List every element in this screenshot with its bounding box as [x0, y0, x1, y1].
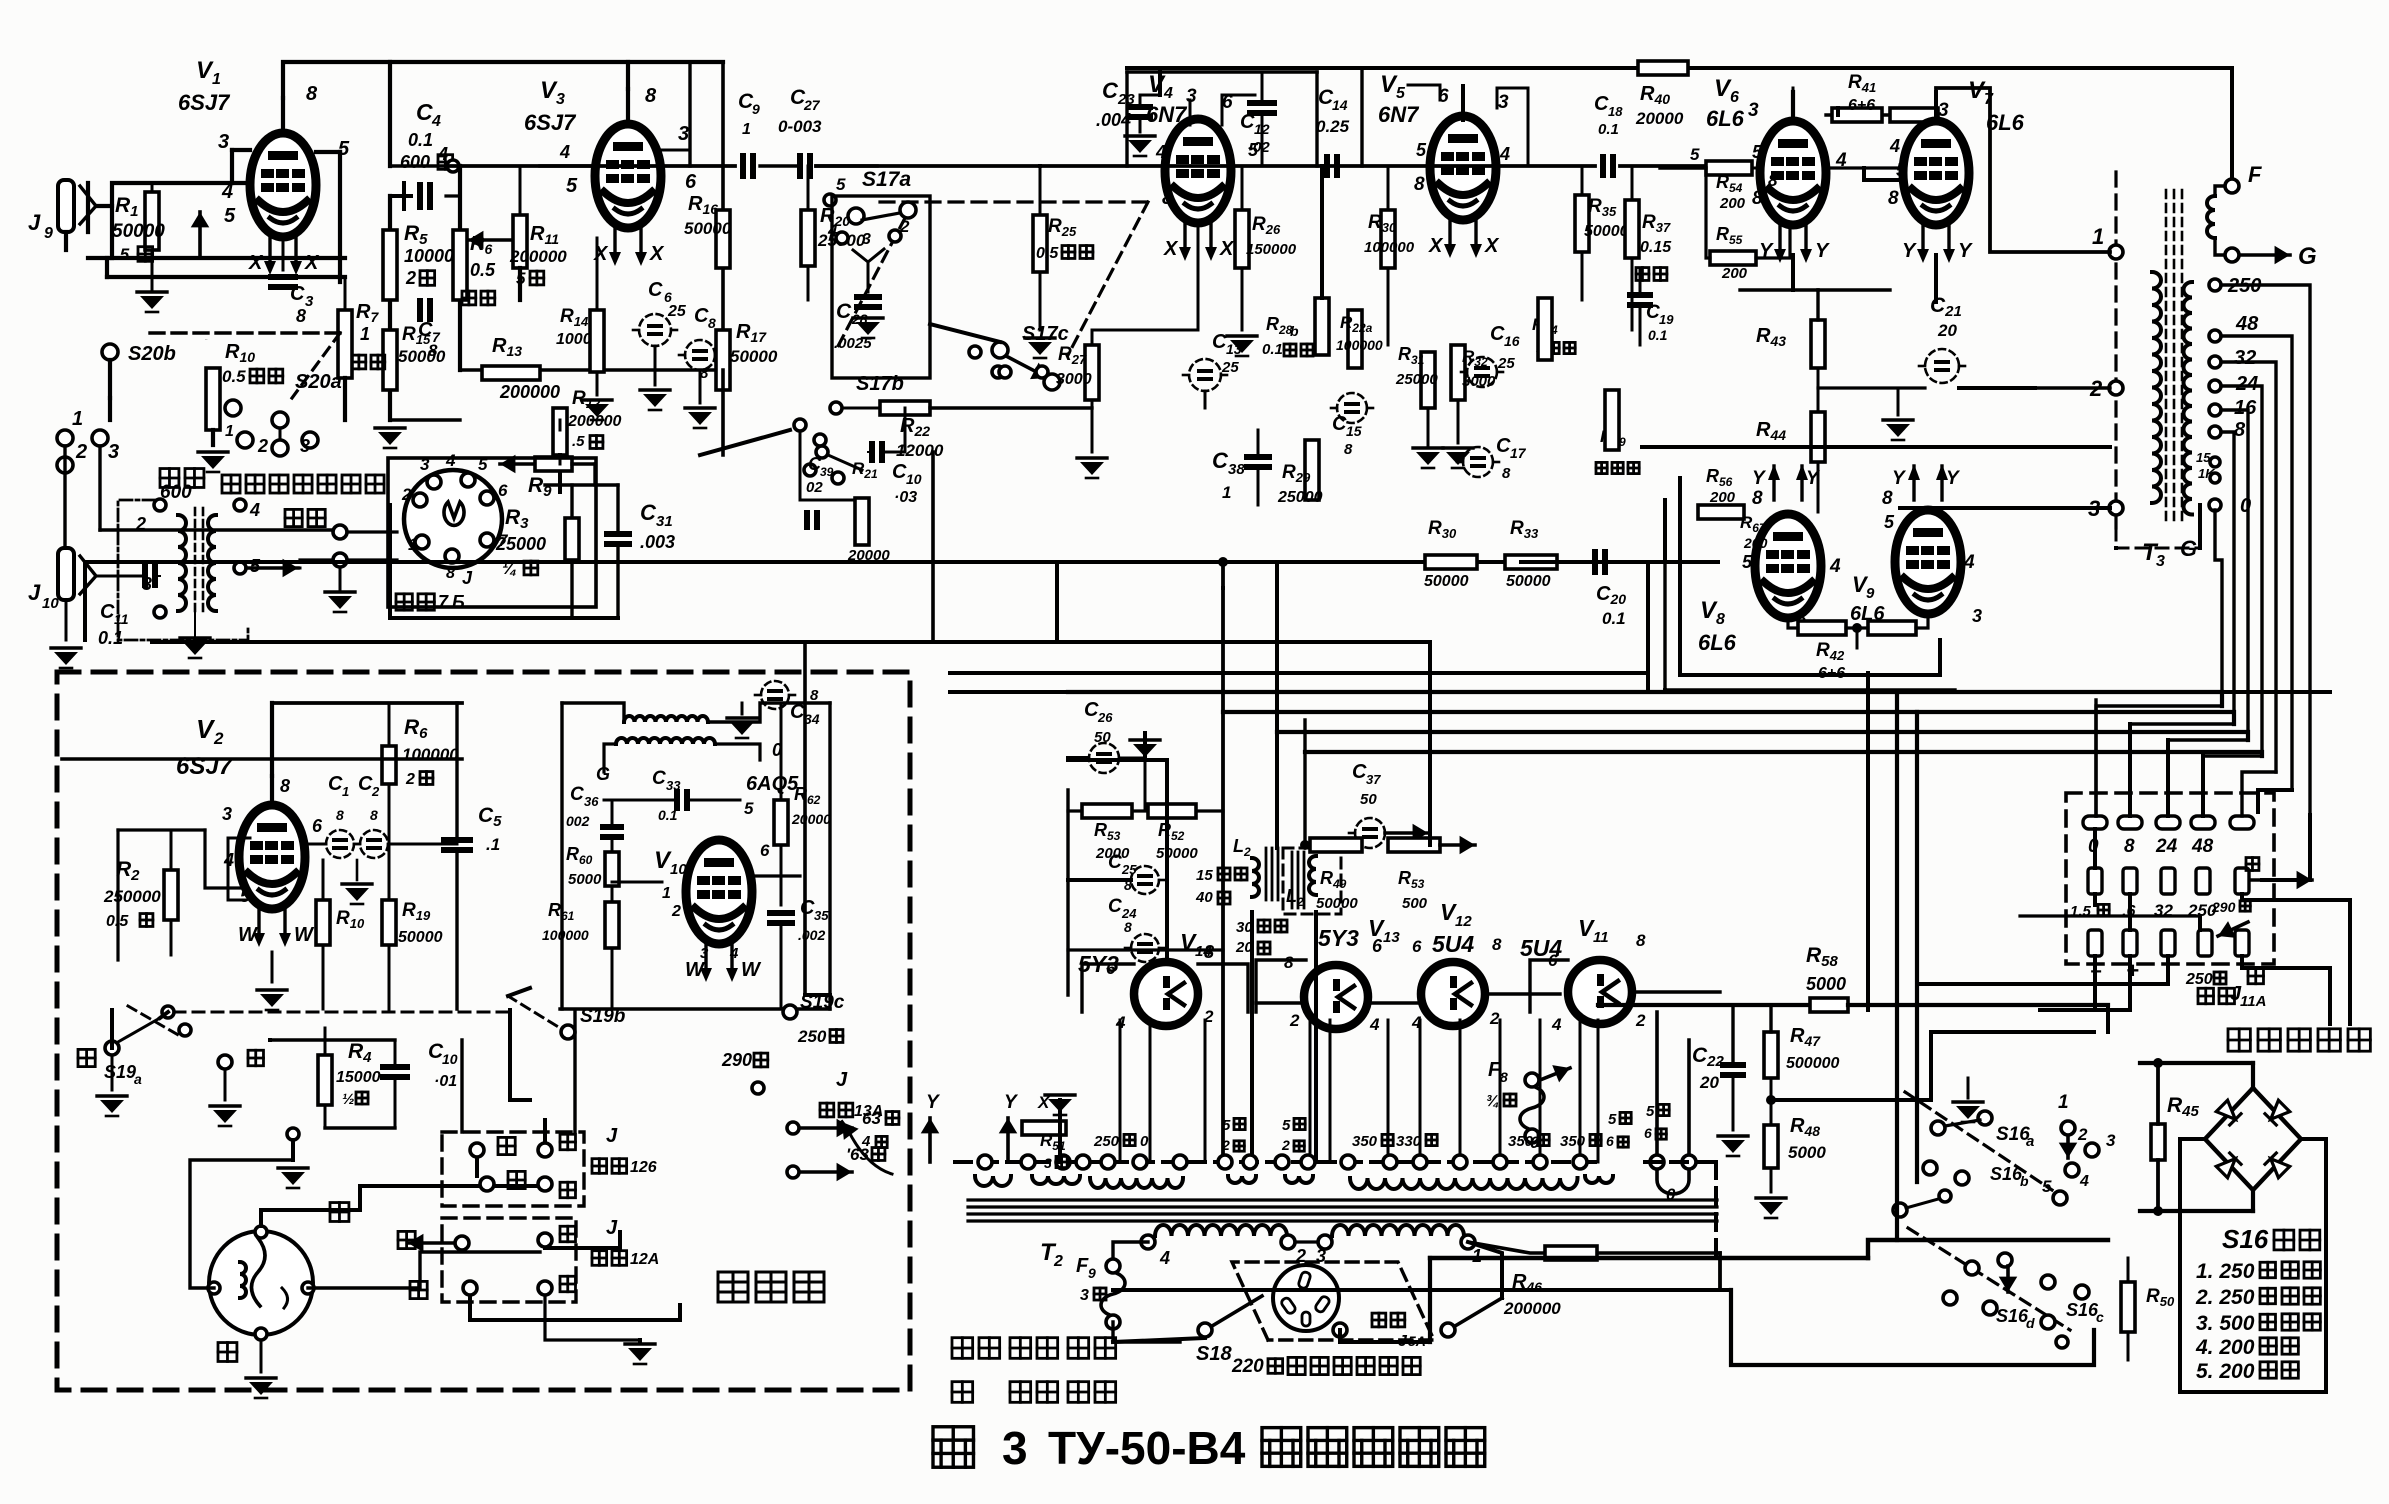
svg-text:25000: 25000: [495, 534, 546, 554]
svg-text:1: 1: [342, 784, 349, 799]
svg-text:0.5: 0.5: [470, 260, 496, 280]
svg-text:3. 500: 3. 500: [2196, 1312, 2255, 1335]
svg-text:50000: 50000: [398, 929, 443, 946]
svg-text:48: 48: [2191, 836, 2214, 857]
svg-text:8: 8: [2234, 419, 2246, 441]
svg-text:11: 11: [1593, 929, 1609, 946]
svg-text:6AQ5: 6AQ5: [746, 773, 799, 795]
svg-text:9: 9: [1866, 585, 1875, 602]
svg-text:8: 8: [1284, 953, 1294, 972]
svg-text:15000: 15000: [336, 1069, 381, 1086]
svg-text:38: 38: [1228, 461, 1245, 478]
svg-text:C: C: [1240, 111, 1255, 133]
svg-text:S20b: S20b: [128, 343, 176, 365]
svg-text:220: 220: [1231, 1356, 1264, 1377]
svg-text:15: 15: [1196, 867, 1213, 884]
svg-text:330: 330: [1396, 1133, 1422, 1150]
svg-text:2: 2: [371, 784, 380, 799]
svg-text:150000: 150000: [1246, 241, 1297, 258]
svg-text:6L6: 6L6: [1706, 106, 1745, 131]
svg-text:C: C: [1332, 413, 1347, 435]
svg-text:200: 200: [1719, 195, 1746, 212]
svg-text:8: 8: [810, 687, 819, 704]
svg-text:Y: Y: [1958, 240, 1973, 262]
svg-text:5000: 5000: [568, 871, 602, 888]
svg-text:4: 4: [1159, 1248, 1170, 1268]
svg-text:5: 5: [1222, 1117, 1231, 1134]
svg-text:18: 18: [1608, 104, 1623, 119]
svg-text:2: 2: [671, 903, 681, 920]
svg-text:16: 16: [1504, 333, 1520, 349]
svg-text:5: 5: [240, 886, 251, 906]
svg-text:1: 1: [742, 121, 751, 138]
svg-text:4: 4: [437, 144, 448, 164]
svg-text:2. 250: 2. 250: [2195, 1286, 2255, 1309]
svg-text:1: 1: [72, 408, 83, 430]
svg-text:6: 6: [1606, 1133, 1614, 1149]
svg-text:50000: 50000: [730, 347, 778, 366]
svg-text:1: 1: [408, 535, 417, 554]
svg-text:C: C: [1212, 331, 1227, 353]
svg-text:5: 5: [1608, 1111, 1617, 1128]
svg-text:5: 5: [1742, 552, 1753, 572]
svg-text:8: 8: [1500, 1069, 1508, 1085]
svg-text:J: J: [606, 1125, 618, 1147]
svg-text:0.1: 0.1: [1648, 327, 1668, 343]
svg-text:J: J: [462, 568, 473, 588]
svg-text:5: 5: [224, 205, 236, 227]
svg-text:5: 5: [1396, 85, 1406, 102]
svg-text:.5: .5: [115, 245, 130, 264]
svg-text:.5: .5: [572, 433, 585, 450]
svg-text:10: 10: [42, 595, 59, 612]
svg-text:C: C: [1212, 448, 1229, 473]
svg-text:5: 5: [566, 175, 578, 197]
svg-text:S20a: S20a: [295, 371, 342, 393]
svg-text:5000: 5000: [1806, 974, 1846, 994]
svg-text:500000: 500000: [1786, 1055, 1839, 1072]
svg-text:S19b: S19b: [580, 1006, 626, 1027]
svg-text:5: 5: [1690, 145, 1700, 164]
svg-text:17: 17: [1510, 445, 1527, 461]
svg-text:C: C: [358, 773, 373, 795]
svg-text:W: W: [294, 924, 315, 946]
svg-text:33: 33: [666, 778, 681, 793]
svg-text:600: 600: [400, 152, 430, 172]
svg-text:500: 500: [1402, 895, 1428, 912]
svg-text:40: 40: [1195, 889, 1213, 906]
svg-text:3: 3: [300, 436, 310, 456]
svg-text:3: 3: [556, 91, 565, 108]
svg-text:350: 350: [1560, 1133, 1586, 1150]
svg-text:8: 8: [1882, 488, 1893, 509]
svg-text:J: J: [28, 580, 41, 605]
svg-text:5: 5: [836, 175, 846, 194]
svg-text:C: C: [836, 300, 852, 323]
svg-text:7: 7: [438, 592, 449, 612]
svg-text:J: J: [28, 210, 41, 235]
svg-text:25: 25: [1221, 359, 1239, 376]
svg-text:5: 5: [744, 799, 754, 818]
svg-text:8: 8: [1492, 935, 1502, 954]
svg-text:G: G: [2298, 243, 2317, 270]
svg-text:100000: 100000: [542, 927, 589, 943]
svg-text:2: 2: [405, 268, 416, 288]
svg-text:350: 350: [1508, 1133, 1534, 1150]
svg-text:5: 5: [2042, 1177, 2052, 1196]
svg-text:4: 4: [559, 142, 570, 162]
svg-text:1: 1: [225, 423, 234, 440]
svg-text:C: C: [100, 601, 115, 623]
svg-text:C: C: [1352, 761, 1367, 783]
svg-text:6+6: 6+6: [1848, 97, 1875, 114]
svg-text:10: 10: [906, 471, 922, 487]
svg-text:8: 8: [1768, 171, 1778, 190]
svg-text:C: C: [1490, 323, 1505, 345]
svg-text:·01: ·01: [434, 1073, 457, 1090]
svg-text:C: C: [1594, 93, 1609, 115]
svg-text:8: 8: [1716, 611, 1725, 628]
svg-text:290: 290: [721, 1050, 752, 1070]
svg-text:50: 50: [1360, 791, 1377, 808]
svg-text:3: 3: [1080, 1287, 1089, 1304]
svg-text:290: 290: [2211, 899, 2236, 915]
svg-text:5. 200: 5. 200: [2196, 1360, 2255, 1383]
svg-text:8: 8: [1124, 919, 1132, 935]
svg-text:20000: 20000: [791, 811, 831, 827]
svg-text:.003: .003: [640, 532, 675, 552]
svg-text:C: C: [290, 283, 305, 305]
svg-text:2: 2: [257, 436, 268, 456]
svg-text:32: 32: [2234, 347, 2256, 369]
svg-text:0-003: 0-003: [778, 117, 822, 136]
svg-text:6: 6: [1412, 937, 1422, 956]
svg-text:250: 250: [797, 1027, 827, 1046]
svg-text:5: 5: [1752, 142, 1763, 162]
svg-text:C: C: [648, 279, 663, 301]
svg-text:4: 4: [1155, 142, 1166, 162]
svg-text:·03: ·03: [894, 489, 917, 506]
svg-text:b: b: [1290, 323, 1299, 339]
svg-text:50000: 50000: [1316, 895, 1358, 912]
svg-text:50000: 50000: [684, 219, 732, 238]
svg-text:c: c: [2096, 1309, 2104, 1325]
svg-text:9: 9: [1088, 1265, 1096, 1281]
svg-text:Б: Б: [452, 592, 465, 612]
svg-text:3: 3: [2156, 553, 2165, 570]
svg-text:2: 2: [1635, 1011, 1646, 1030]
svg-text:50000: 50000: [398, 347, 446, 366]
svg-text:Y: Y: [1902, 240, 1917, 262]
svg-text:0.1: 0.1: [658, 807, 678, 823]
svg-text:002: 002: [566, 813, 590, 829]
svg-text:S16: S16: [1990, 1164, 2023, 1184]
svg-text:¾: ¾: [1486, 1093, 1499, 1110]
svg-text:50000: 50000: [1424, 573, 1469, 590]
svg-text:1. 250: 1. 250: [2196, 1260, 2255, 1283]
svg-text:S19: S19: [104, 1062, 136, 1082]
svg-text:X: X: [1163, 238, 1179, 260]
svg-text:Y: Y: [1815, 240, 1830, 262]
svg-text:W: W: [741, 959, 762, 981]
svg-text:2: 2: [2077, 1125, 2088, 1144]
svg-text:48: 48: [2235, 313, 2259, 335]
svg-text:0: 0: [1140, 1133, 1149, 1150]
svg-text:19: 19: [1659, 312, 1674, 327]
svg-text:12: 12: [1455, 913, 1472, 930]
svg-text:2: 2: [1281, 1137, 1290, 1153]
svg-text:3: 3: [1044, 1155, 1052, 1171]
svg-text:250: 250: [2185, 971, 2213, 988]
svg-text:8: 8: [336, 807, 344, 823]
svg-text:6: 6: [1106, 959, 1116, 978]
svg-text:1: 1: [360, 324, 370, 344]
svg-text:J: J: [606, 1217, 618, 1239]
svg-text:20: 20: [1699, 1073, 1719, 1092]
svg-text:8: 8: [1636, 931, 1646, 950]
svg-text:126: 126: [630, 1159, 657, 1176]
svg-text:25: 25: [667, 303, 687, 320]
svg-text:1: 1: [2092, 224, 2104, 249]
svg-text:2: 2: [75, 441, 87, 463]
svg-text:4. 200: 4. 200: [2195, 1336, 2255, 1359]
svg-text:50000: 50000: [112, 221, 165, 242]
svg-text:3: 3: [678, 123, 689, 145]
svg-text:6: 6: [685, 171, 697, 193]
svg-text:63: 63: [862, 1109, 881, 1128]
svg-text:5: 5: [1884, 512, 1895, 532]
svg-text:X: X: [304, 252, 320, 274]
svg-text:0: 0: [1666, 1185, 1676, 1204]
svg-text:S17c: S17c: [1022, 323, 1069, 345]
svg-text:2: 2: [1489, 1009, 1500, 1028]
svg-text:12A: 12A: [630, 1251, 659, 1268]
svg-text:8: 8: [306, 83, 318, 105]
svg-text:C: C: [1496, 435, 1511, 457]
svg-text:6: 6: [498, 481, 508, 500]
svg-text:16: 16: [2234, 397, 2257, 419]
svg-text:27: 27: [803, 97, 821, 113]
svg-text:0.1: 0.1: [408, 130, 433, 150]
svg-text:8: 8: [1162, 188, 1173, 209]
svg-text:S18: S18: [1196, 1343, 1232, 1365]
svg-text:200: 200: [1709, 489, 1736, 506]
svg-text:20: 20: [1937, 321, 1957, 340]
svg-text:26: 26: [1097, 710, 1113, 725]
svg-text:02: 02: [806, 479, 823, 496]
svg-text:36: 36: [584, 794, 599, 809]
svg-text:4: 4: [445, 451, 456, 470]
svg-text:8: 8: [446, 565, 455, 582]
svg-text:2: 2: [135, 514, 146, 534]
svg-text:W: W: [685, 959, 706, 981]
svg-text:9: 9: [752, 101, 760, 117]
svg-text:J: J: [836, 1069, 848, 1091]
svg-text:39: 39: [820, 465, 834, 479]
svg-text:0.1: 0.1: [1602, 609, 1626, 628]
svg-text:4: 4: [1163, 85, 1173, 102]
svg-text:½: ½: [342, 1091, 355, 1108]
svg-text:35: 35: [814, 908, 829, 923]
svg-text:a: a: [2026, 1133, 2034, 1150]
svg-text:5000: 5000: [1788, 1143, 1826, 1162]
svg-text:4: 4: [861, 1133, 871, 1150]
svg-text:24: 24: [2155, 836, 2178, 857]
svg-text:a: a: [134, 1071, 142, 1087]
svg-text:24: 24: [2235, 373, 2258, 395]
svg-text:X: X: [593, 243, 609, 265]
svg-text:3: 3: [1972, 606, 1982, 626]
svg-text:+: +: [2126, 958, 2139, 983]
svg-text:C: C: [1084, 699, 1099, 721]
svg-text:3: 3: [1748, 100, 1759, 121]
svg-text:4: 4: [2079, 1173, 2089, 1190]
svg-text:11: 11: [114, 611, 129, 627]
svg-text:4: 4: [1369, 1015, 1380, 1034]
svg-text:8: 8: [1752, 488, 1763, 509]
svg-text:1: 1: [662, 885, 671, 902]
svg-text:S16: S16: [1996, 1306, 2029, 1326]
svg-text:S17a: S17a: [862, 168, 911, 191]
svg-text:200: 200: [1721, 265, 1748, 282]
svg-text:V: V: [196, 714, 216, 744]
svg-text:200000: 200000: [499, 382, 560, 402]
svg-text:C: C: [790, 701, 805, 723]
svg-text:10: 10: [670, 861, 687, 878]
svg-text:4: 4: [1499, 144, 1510, 164]
svg-text:6L6: 6L6: [1698, 630, 1737, 655]
svg-text:10: 10: [442, 1051, 458, 1067]
svg-text:2: 2: [405, 771, 415, 788]
svg-text:6: 6: [1372, 936, 1383, 956]
svg-text:250: 250: [1093, 1133, 1120, 1150]
svg-text:3: 3: [218, 131, 229, 153]
svg-text:X: X: [1484, 235, 1500, 257]
svg-text:6SJ7: 6SJ7: [176, 753, 234, 780]
svg-text:2: 2: [401, 485, 412, 504]
svg-text:11A: 11A: [2240, 993, 2266, 1010]
svg-text:C: C: [1108, 852, 1122, 873]
svg-text:25000: 25000: [1395, 371, 1438, 388]
svg-text:5: 5: [1646, 1103, 1655, 1120]
svg-text:250000: 250000: [103, 887, 161, 906]
svg-text:0.15: 0.15: [1640, 239, 1672, 256]
svg-text:4: 4: [1963, 552, 1975, 573]
svg-text:37: 37: [1366, 772, 1381, 787]
svg-text:6N7: 6N7: [1378, 102, 1420, 127]
svg-text:.1: .1: [486, 835, 500, 854]
svg-text:4: 4: [431, 113, 441, 130]
svg-text:0.1: 0.1: [1262, 341, 1283, 358]
svg-text:8: 8: [1888, 188, 1899, 209]
svg-text:8: 8: [370, 807, 378, 823]
svg-text:0.1: 0.1: [1598, 121, 1619, 138]
svg-text:2: 2: [899, 217, 910, 236]
svg-text:C: C: [1646, 302, 1660, 323]
svg-text:25000: 25000: [1277, 489, 1323, 506]
svg-text:8: 8: [2124, 836, 2135, 857]
svg-text:1000: 1000: [556, 331, 592, 348]
svg-text:5: 5: [250, 556, 261, 576]
svg-text:0.5: 0.5: [1036, 245, 1059, 262]
svg-text:S16: S16: [2222, 1224, 2269, 1254]
svg-text:8: 8: [645, 85, 657, 107]
svg-text:C: C: [1102, 78, 1119, 103]
svg-text:1: 1: [1222, 483, 1231, 502]
svg-text:3: 3: [1938, 100, 1949, 121]
svg-text:200000: 200000: [567, 413, 621, 430]
svg-text:3: 3: [108, 441, 119, 463]
svg-text:d: d: [2026, 1315, 2035, 1331]
svg-text:200: 200: [1743, 535, 1768, 551]
svg-text:2: 2: [1289, 1011, 1300, 1030]
svg-text:6SJ7: 6SJ7: [524, 110, 577, 135]
svg-text:8: 8: [296, 306, 306, 326]
svg-text:20000: 20000: [1635, 109, 1684, 128]
svg-text:50: 50: [1094, 729, 1111, 746]
svg-text:S20a: S20a: [205, 339, 208, 341]
svg-text:8: 8: [1752, 188, 1763, 209]
svg-text:5Y3: 5Y3: [1318, 925, 1359, 951]
svg-text:X: X: [1428, 235, 1444, 257]
svg-text:C: C: [416, 99, 433, 125]
svg-text:3: 3: [862, 231, 871, 248]
svg-text:13: 13: [1383, 929, 1400, 946]
svg-text:6: 6: [1730, 89, 1739, 106]
svg-text:200000: 200000: [509, 247, 567, 266]
svg-text:6SJ7: 6SJ7: [178, 90, 231, 115]
svg-text:b: b: [2020, 1173, 2029, 1189]
svg-text:100000: 100000: [402, 745, 459, 764]
svg-text:G: G: [596, 764, 610, 784]
svg-text:14: 14: [1332, 97, 1348, 113]
svg-text:50000: 50000: [1156, 845, 1198, 862]
svg-text:3: 3: [305, 293, 314, 310]
svg-text:-02: -02: [1248, 139, 1270, 156]
svg-text:25: 25: [1497, 355, 1515, 372]
svg-text:ТУ-50-В4: ТУ-50-В4: [1048, 1422, 1246, 1474]
svg-text:5: 5: [1896, 160, 1907, 180]
svg-text:4: 4: [1829, 556, 1841, 577]
svg-text:3: 3: [700, 945, 709, 962]
svg-text:31: 31: [656, 513, 673, 530]
svg-text:5: 5: [1416, 140, 1427, 160]
svg-text:C: C: [328, 773, 343, 795]
svg-text:4: 4: [249, 500, 260, 520]
svg-text:4: 4: [1889, 136, 1900, 156]
svg-text:C: C: [892, 461, 907, 483]
svg-text:200000: 200000: [1503, 1299, 1561, 1318]
svg-text:C: C: [1108, 896, 1122, 917]
svg-text:2: 2: [1221, 1137, 1230, 1153]
svg-text:9: 9: [44, 225, 53, 242]
svg-text:X: X: [1219, 238, 1235, 260]
svg-text:8: 8: [1414, 174, 1425, 195]
svg-text:0.25: 0.25: [1316, 117, 1350, 136]
svg-text:3000: 3000: [1056, 371, 1092, 388]
svg-text:8: 8: [1502, 465, 1511, 482]
svg-text:15: 15: [1346, 423, 1362, 439]
svg-text:1: 1: [2058, 1092, 2069, 1113]
svg-text:50000: 50000: [1584, 223, 1629, 240]
svg-text:X: X: [649, 243, 665, 265]
svg-text:0.5: 0.5: [222, 367, 246, 386]
svg-text:4: 4: [729, 945, 739, 962]
svg-text:S17b: S17b: [856, 373, 904, 395]
svg-text:8: 8: [280, 776, 290, 796]
svg-text:6: 6: [312, 816, 323, 836]
svg-text:25: 25: [1121, 862, 1137, 877]
